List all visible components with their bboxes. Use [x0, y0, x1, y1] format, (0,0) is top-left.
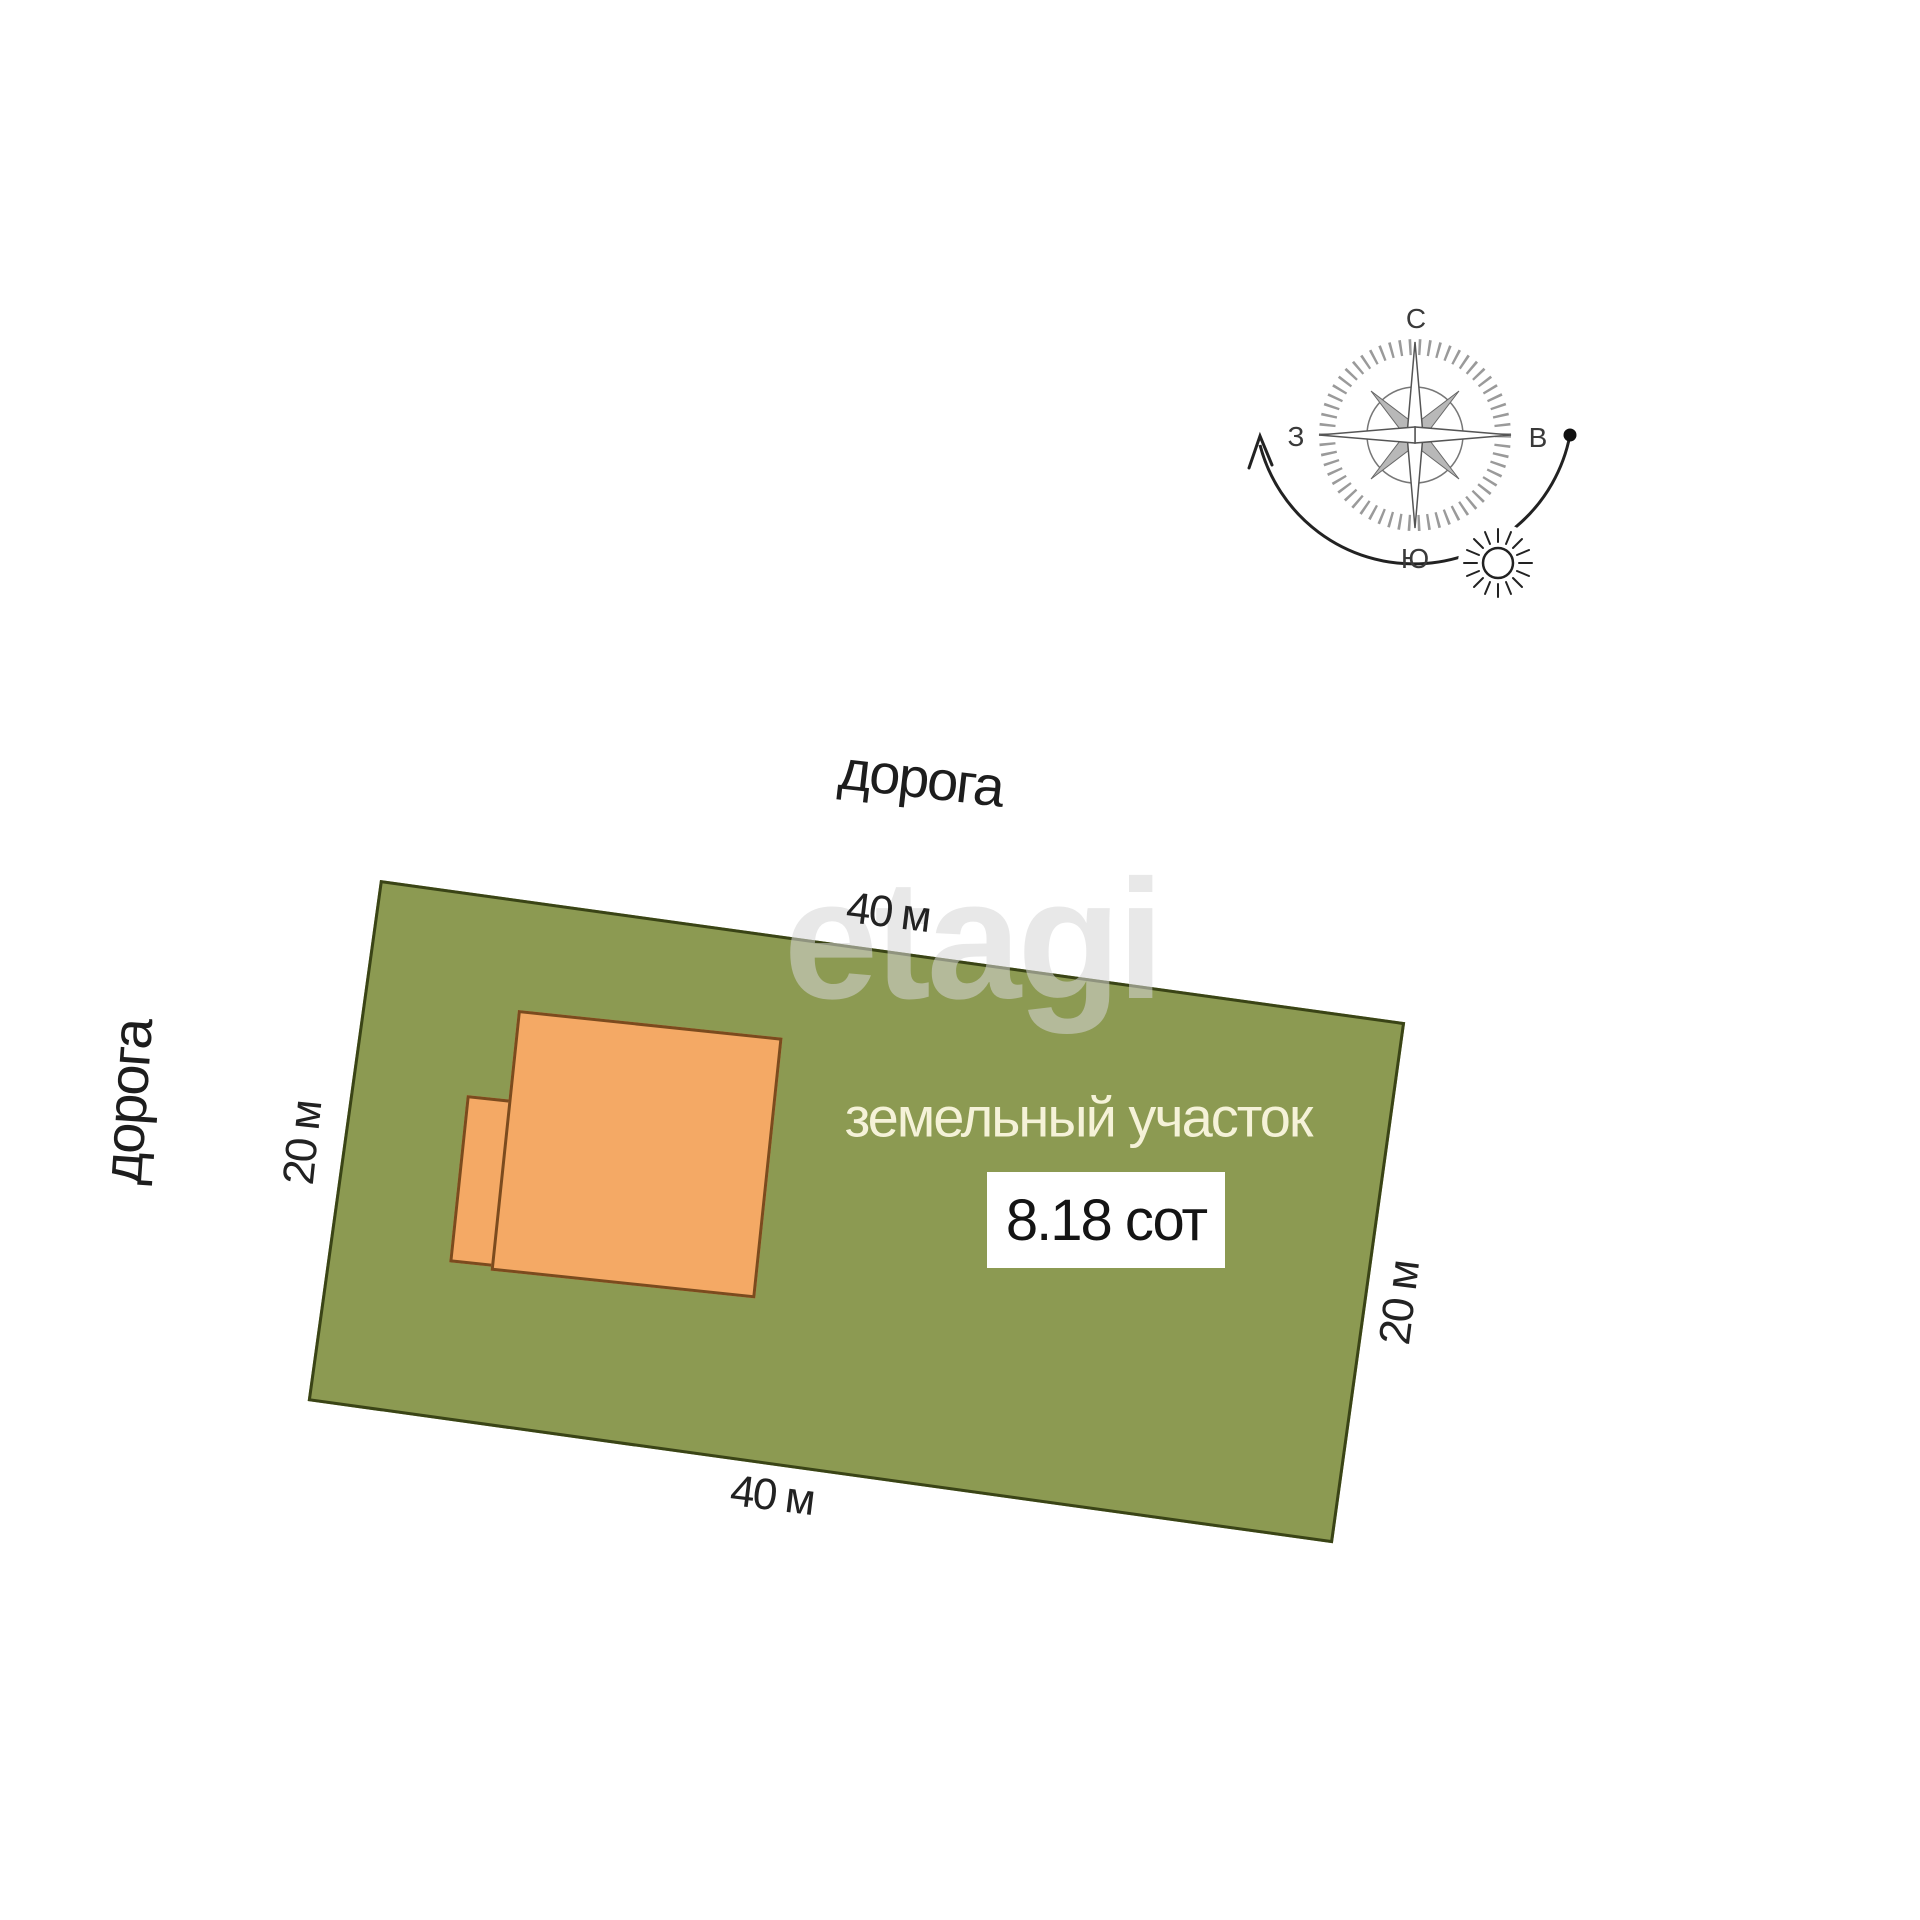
dimension-bottom: 40 м [728, 1466, 817, 1526]
compass-west-label: З [1288, 421, 1305, 452]
dimension-top: 40 м [844, 883, 933, 943]
plot-title: земельный участок [845, 1085, 1312, 1150]
dimension-left: 20 м [274, 1099, 332, 1187]
site-plan: etagi земельный участок 8.18 сот 40 м 40… [0, 0, 1920, 1920]
dimension-right: 20 м [1370, 1259, 1430, 1348]
road-label-left: дорога [89, 1018, 165, 1187]
area-badge: 8.18 сот [987, 1172, 1225, 1268]
building-main [491, 1010, 783, 1298]
compass-south-label: Ю [1401, 543, 1429, 574]
compass-north-label: С [1406, 303, 1426, 334]
compass-east-label: В [1529, 422, 1548, 453]
road-label-top: дорога [836, 736, 1007, 819]
area-value: 8.18 сот [1006, 1187, 1206, 1254]
compass-rose-icon: С З В Ю [1245, 250, 1585, 610]
sun-icon [1464, 529, 1532, 597]
sun-path-start-dot [1564, 429, 1577, 442]
